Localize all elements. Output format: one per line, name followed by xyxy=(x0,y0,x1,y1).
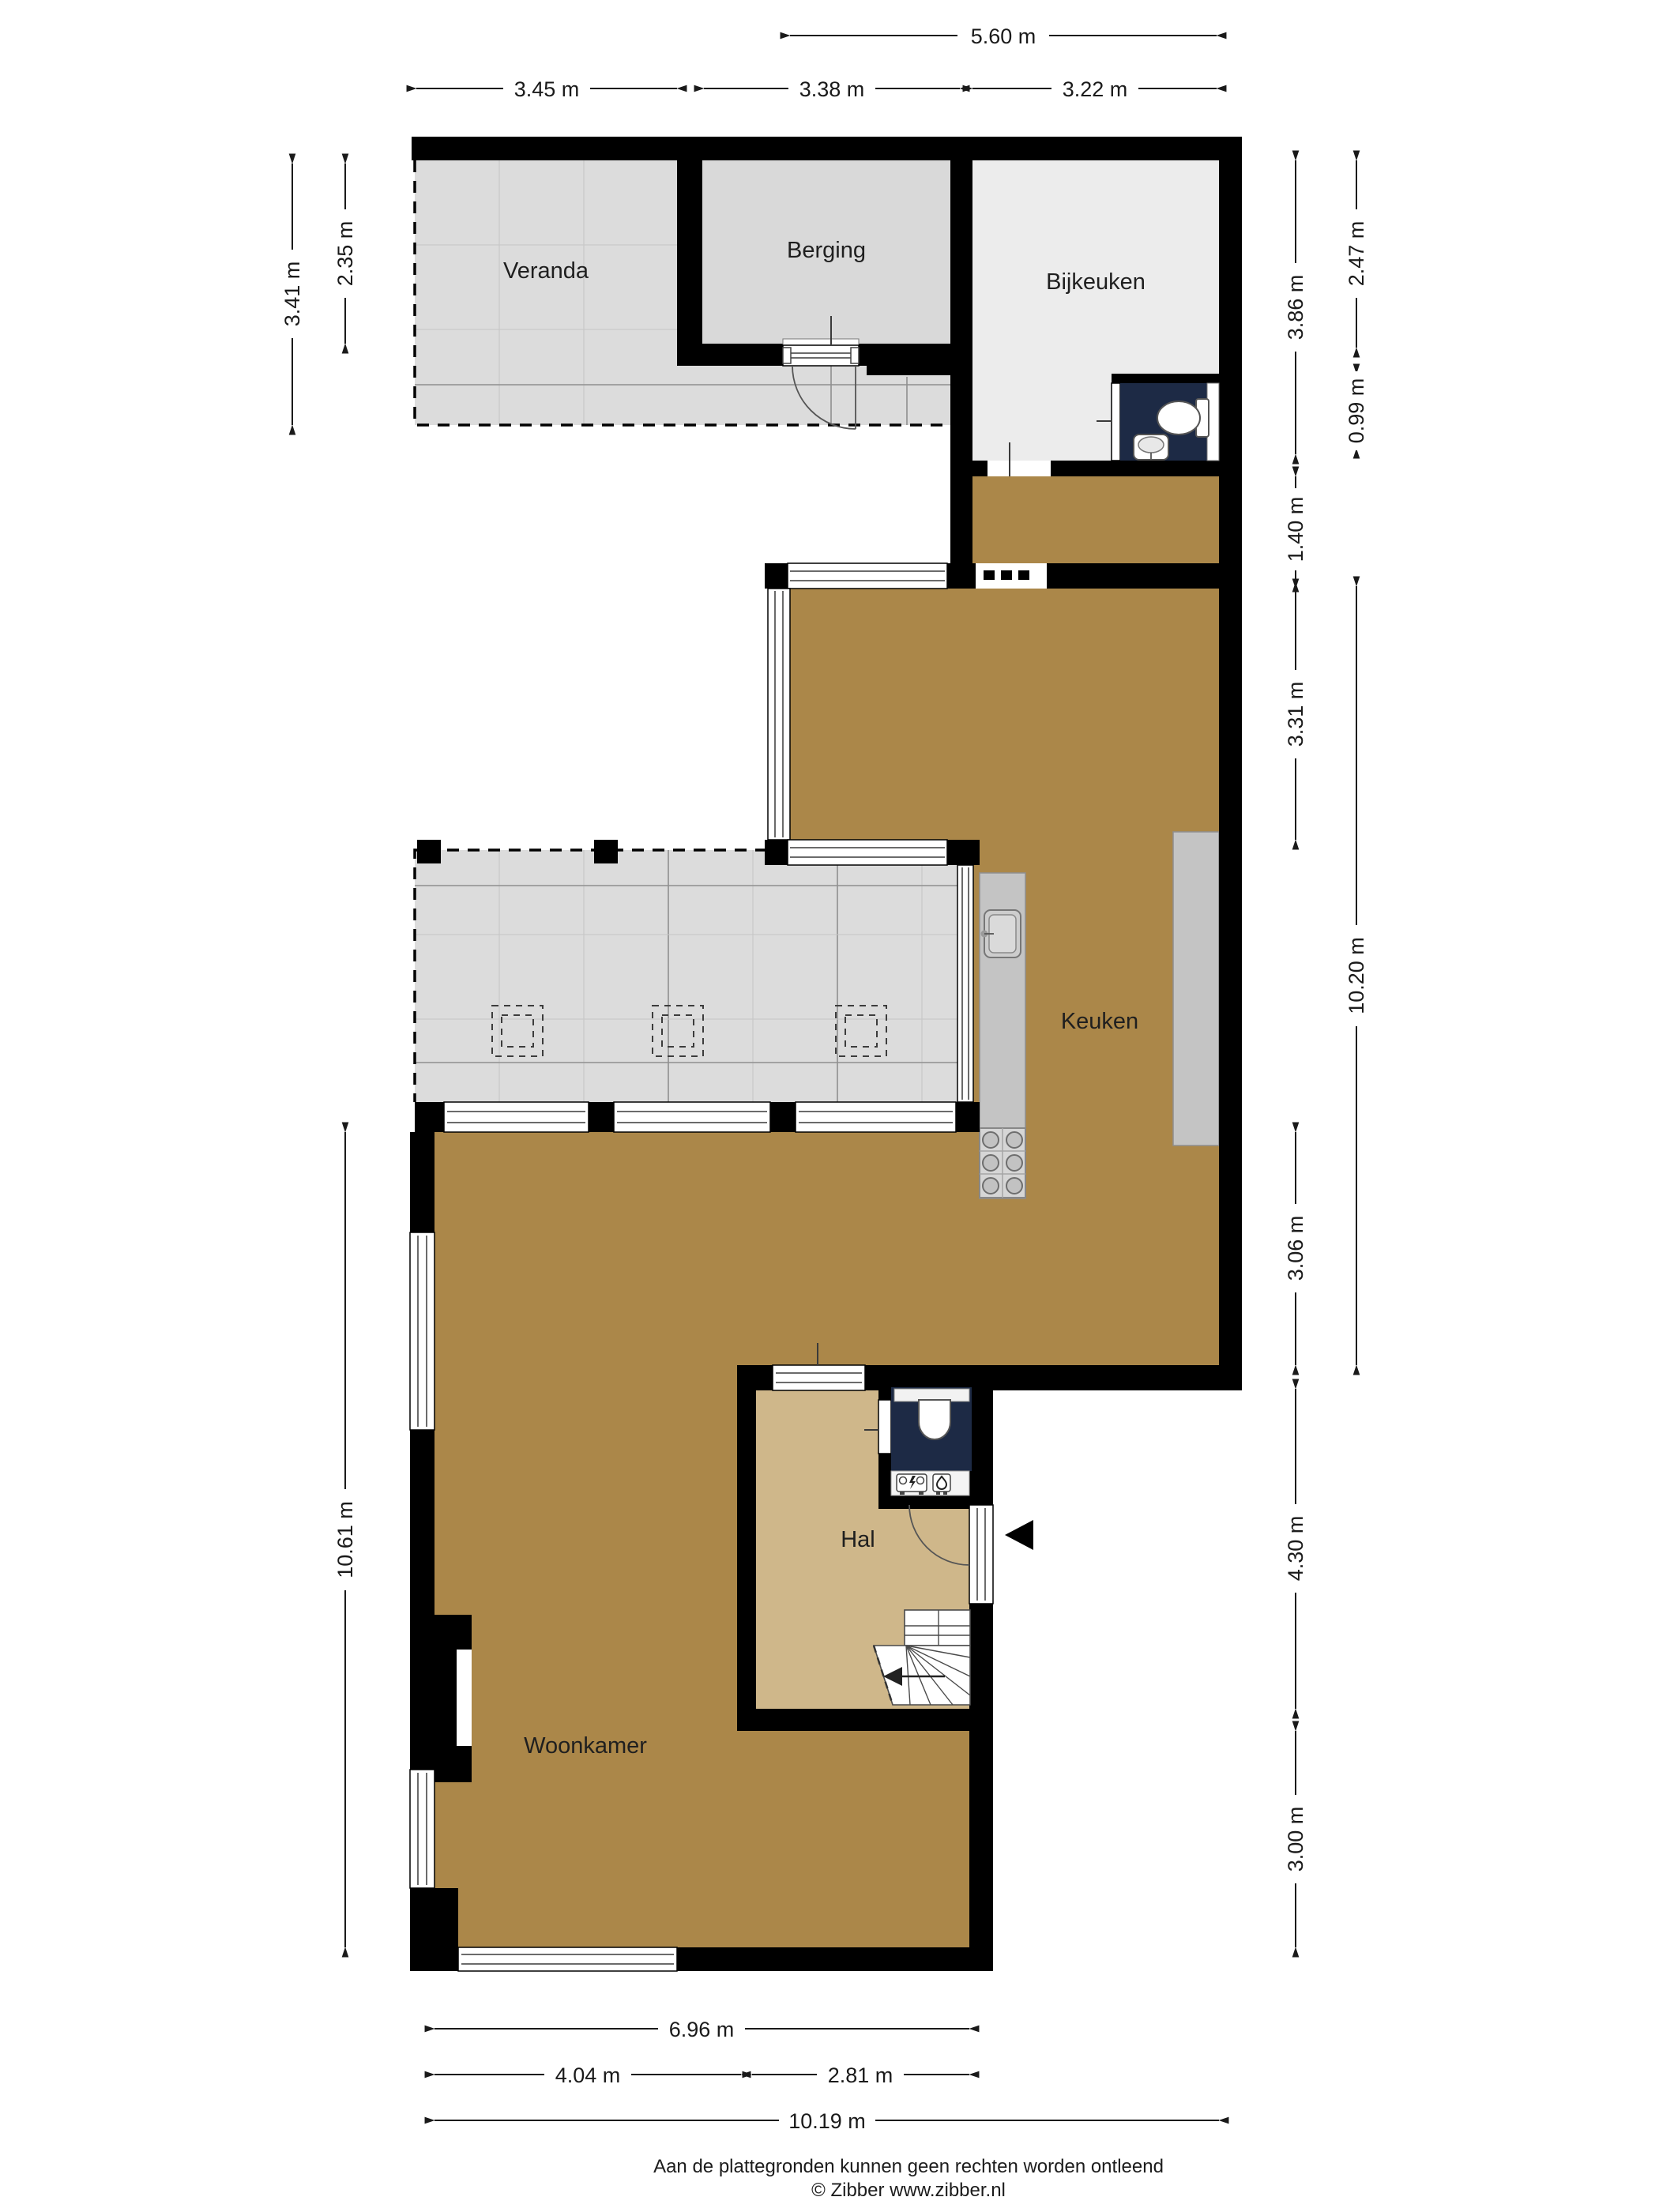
floorplan-svg: Veranda Berging Bijkeuken Keuken Hal Woo… xyxy=(0,0,1659,2212)
wall-post xyxy=(417,840,441,863)
wall-post xyxy=(594,840,618,863)
room-label-woonkamer: Woonkamer xyxy=(524,1733,647,1759)
dimension: 1.40 m xyxy=(1283,476,1308,582)
kitchen-island xyxy=(980,873,1025,1198)
wall-post xyxy=(947,563,976,589)
floorplan-canvas: Veranda Berging Bijkeuken Keuken Hal Woo… xyxy=(0,0,1659,2212)
dimension: 0.99 m xyxy=(1344,371,1369,450)
room-label-keuken: Keuken xyxy=(1061,1009,1138,1034)
fireplace-notch xyxy=(457,1650,472,1746)
wall xyxy=(737,1365,773,1390)
svg-text:3.45 m: 3.45 m xyxy=(514,77,580,101)
wall xyxy=(410,1132,434,1232)
toilet-door xyxy=(878,1400,891,1454)
svg-text:4.30 m: 4.30 m xyxy=(1284,1516,1307,1582)
room-keuken-floor xyxy=(790,589,1219,840)
wall-post xyxy=(770,1102,796,1132)
door-sill xyxy=(783,339,859,345)
svg-text:2.35 m: 2.35 m xyxy=(333,221,357,287)
terrace-floor xyxy=(415,850,957,1102)
wall xyxy=(410,1430,434,1770)
wall xyxy=(412,137,1242,160)
svg-text:3.86 m: 3.86 m xyxy=(1284,275,1307,340)
svg-text:3.00 m: 3.00 m xyxy=(1284,1807,1307,1872)
svg-text:10.20 m: 10.20 m xyxy=(1345,937,1368,1014)
svg-text:0.99 m: 0.99 m xyxy=(1345,378,1368,444)
svg-text:6.96 m: 6.96 m xyxy=(669,2018,735,2041)
threshold-dash xyxy=(984,570,995,580)
wall-post xyxy=(956,1102,980,1132)
toilet-icon xyxy=(1157,399,1209,437)
wall xyxy=(1047,563,1219,589)
room-woonkamer-floor-south xyxy=(737,1731,993,1947)
toilet-icon xyxy=(919,1400,950,1439)
footer-copyright: © Zibber www.zibber.nl xyxy=(811,2180,1006,2201)
wall xyxy=(969,1387,993,1505)
footer-disclaimer: Aan de plattegronden kunnen geen rechten… xyxy=(653,2156,1164,2177)
window xyxy=(788,563,947,589)
wall-post xyxy=(765,840,788,865)
window xyxy=(458,1947,677,1971)
svg-text:3.06 m: 3.06 m xyxy=(1284,1216,1307,1281)
window xyxy=(957,865,973,1102)
window xyxy=(768,589,790,840)
meter-icon-gas xyxy=(933,1474,950,1495)
corridor-floor xyxy=(972,476,1219,563)
wall-post xyxy=(589,1102,614,1132)
wall xyxy=(677,344,783,366)
stove-icon xyxy=(980,1128,1025,1198)
svg-text:5.60 m: 5.60 m xyxy=(971,24,1036,48)
wall-post xyxy=(947,840,980,865)
sink-icon xyxy=(981,910,1021,957)
window xyxy=(444,1102,956,1132)
wall xyxy=(969,1604,993,1709)
room-label-hal: Hal xyxy=(841,1527,875,1552)
svg-text:10.61 m: 10.61 m xyxy=(333,1501,357,1578)
kitchen-counter xyxy=(1173,832,1219,1145)
hal-toilet-room xyxy=(891,1387,972,1495)
room-woonkamer-floor xyxy=(434,1365,737,1947)
room-label-berging: Berging xyxy=(787,238,866,263)
room-label-veranda: Veranda xyxy=(503,258,589,284)
svg-text:4.04 m: 4.04 m xyxy=(555,2063,621,2087)
threshold-dash xyxy=(1018,570,1029,580)
svg-text:3.31 m: 3.31 m xyxy=(1284,682,1307,747)
wall xyxy=(859,344,950,366)
svg-text:2.81 m: 2.81 m xyxy=(828,2063,893,2087)
room-keuken-floor-lower xyxy=(434,1132,1219,1365)
wall xyxy=(737,1387,756,1731)
wall xyxy=(1219,137,1242,1390)
wall xyxy=(737,1709,993,1731)
wall-post xyxy=(415,1102,444,1132)
opening xyxy=(987,461,1051,476)
svg-text:10.19 m: 10.19 m xyxy=(788,2109,866,2133)
toilet-door xyxy=(1112,383,1120,461)
wall xyxy=(969,1709,993,1971)
svg-text:3.38 m: 3.38 m xyxy=(799,77,865,101)
threshold-dash xyxy=(1001,570,1012,580)
wall xyxy=(950,137,972,589)
svg-text:2.47 m: 2.47 m xyxy=(1345,221,1368,287)
svg-text:3.22 m: 3.22 m xyxy=(1063,77,1128,101)
room-label-bijkeuken: Bijkeuken xyxy=(1046,269,1145,295)
svg-text:1.40 m: 1.40 m xyxy=(1284,497,1307,562)
wall xyxy=(865,1365,1242,1390)
svg-text:3.41 m: 3.41 m xyxy=(280,261,304,327)
sink-icon xyxy=(1134,434,1168,460)
wall xyxy=(677,137,702,366)
wall xyxy=(1112,374,1219,385)
window xyxy=(788,840,947,865)
meter-icon-electricity xyxy=(897,1474,927,1495)
wall xyxy=(867,366,950,375)
wall-post xyxy=(765,563,788,589)
bijkeuken-toilet-room xyxy=(1120,383,1219,461)
meter-cabinet xyxy=(891,1471,969,1495)
